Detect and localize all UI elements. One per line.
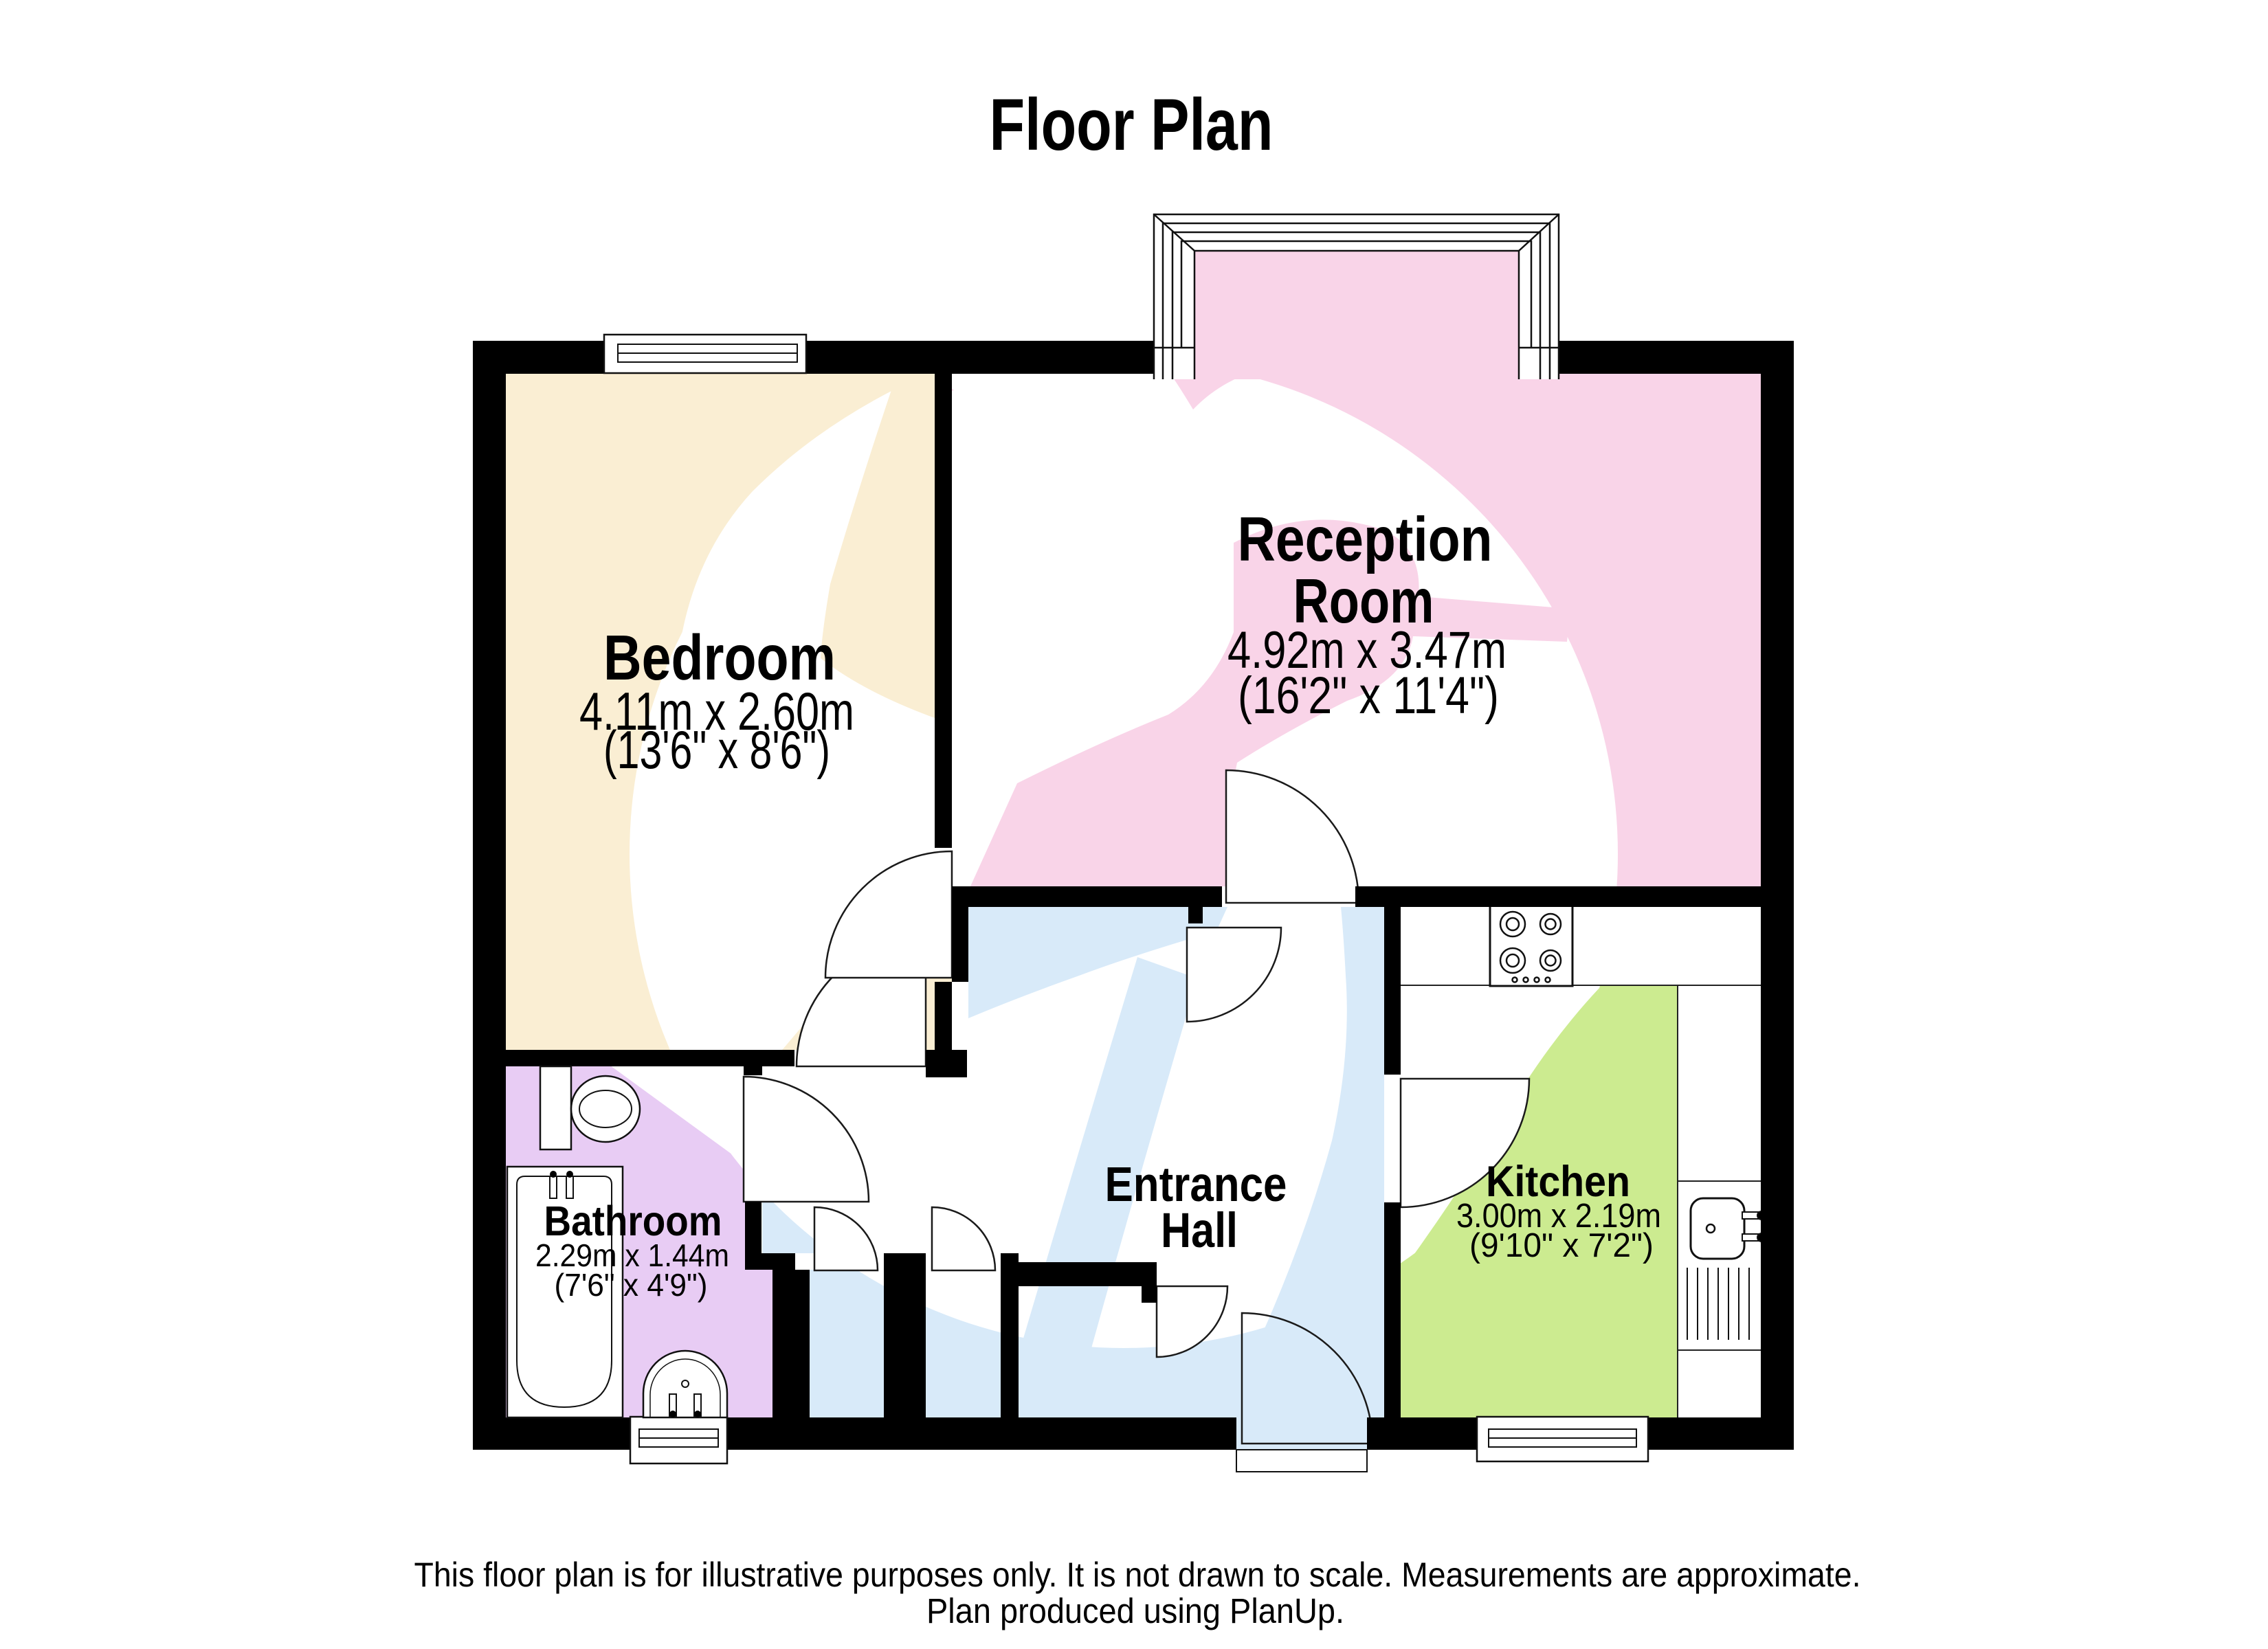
svg-text:This floor plan is for illustr: This floor plan is for illustrative purp…	[414, 1556, 1861, 1594]
svg-text:Floor Plan: Floor Plan	[990, 83, 1274, 166]
svg-text:Hall: Hall	[1161, 1204, 1238, 1258]
svg-text:(9'10" x 7'2"): (9'10" x 7'2")	[1469, 1227, 1654, 1264]
svg-text:Plan produced using PlanUp.: Plan produced using PlanUp.	[926, 1591, 1344, 1630]
svg-text:Reception: Reception	[1238, 505, 1493, 574]
svg-text:(7'6" x 4'9"): (7'6" x 4'9")	[555, 1267, 708, 1303]
svg-text:(16'2" x 11'4"): (16'2" x 11'4")	[1238, 666, 1499, 725]
svg-text:(13'6" x 8'6"): (13'6" x 8'6")	[603, 719, 830, 780]
